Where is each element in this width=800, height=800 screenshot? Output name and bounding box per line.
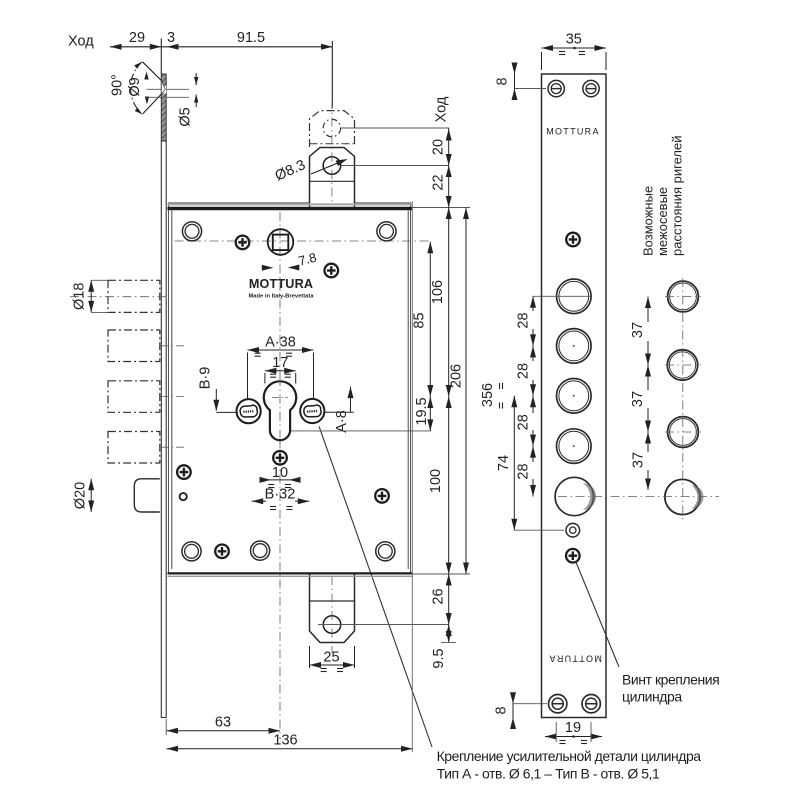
svg-text:MOTTURA: MOTTURA <box>546 127 600 137</box>
svg-text:206: 206 <box>448 364 464 388</box>
svg-text:расстояния ригелей: расстояния ригелей <box>670 136 685 256</box>
svg-text:8: 8 <box>494 706 510 714</box>
svg-text:Крепление усилительной детали: Крепление усилительной детали цилиндра <box>437 748 702 764</box>
svg-text:100: 100 <box>428 469 444 493</box>
svg-text:17: 17 <box>272 355 288 371</box>
svg-text:10: 10 <box>272 465 288 481</box>
svg-text:MOTTURA: MOTTURA <box>249 277 313 291</box>
svg-text:37: 37 <box>630 322 646 338</box>
svg-text:A·38: A·38 <box>265 335 296 351</box>
svg-text:22: 22 <box>431 174 447 190</box>
svg-text:Винт крепления: Винт крепления <box>622 672 719 688</box>
svg-text:19.5: 19.5 <box>414 397 430 425</box>
svg-text:28: 28 <box>516 463 532 479</box>
svg-text:90°: 90° <box>110 74 126 96</box>
svg-text:35: 35 <box>566 32 582 48</box>
svg-text:356: 356 <box>480 383 496 407</box>
svg-text:8: 8 <box>494 77 510 85</box>
svg-text:28: 28 <box>516 414 532 430</box>
svg-text:74: 74 <box>496 455 512 471</box>
svg-text:29: 29 <box>129 30 145 46</box>
svg-text:9.5: 9.5 <box>431 648 447 668</box>
svg-text:85: 85 <box>411 312 427 328</box>
svg-text:37: 37 <box>631 452 647 468</box>
svg-text:Made in Italy-Brevettata: Made in Italy-Brevettata <box>248 294 314 300</box>
svg-text:Ход: Ход <box>68 34 94 50</box>
svg-text:28: 28 <box>516 363 532 379</box>
svg-text:Ход: Ход <box>434 96 450 122</box>
svg-text:межосевые: межосевые <box>655 187 670 256</box>
svg-text:Ø20: Ø20 <box>72 482 88 509</box>
svg-text:Ø5: Ø5 <box>178 107 194 126</box>
svg-text:91.5: 91.5 <box>237 30 265 46</box>
svg-text:25: 25 <box>323 650 339 666</box>
svg-text:Ø9: Ø9 <box>127 77 143 96</box>
svg-text:Возможные: Возможные <box>641 186 656 256</box>
svg-text:3: 3 <box>167 30 175 46</box>
svg-text:B·9: B·9 <box>198 367 214 390</box>
svg-text:Ø18: Ø18 <box>72 283 88 310</box>
svg-text:MOTTURA: MOTTURA <box>548 654 602 664</box>
svg-text:Тип А - отв. Ø 6,1 – Тип В - о: Тип А - отв. Ø 6,1 – Тип В - отв. Ø 5,1 <box>437 766 660 782</box>
svg-text:106: 106 <box>430 280 446 304</box>
svg-text:19: 19 <box>565 720 581 736</box>
svg-text:20: 20 <box>431 139 447 155</box>
svg-text:цилиндра: цилиндра <box>622 689 682 705</box>
svg-text:37: 37 <box>630 391 646 407</box>
svg-text:136: 136 <box>273 733 297 749</box>
svg-text:B·32: B·32 <box>265 487 296 503</box>
svg-text:26: 26 <box>431 588 447 604</box>
svg-text:63: 63 <box>215 715 231 731</box>
svg-text:28: 28 <box>516 312 532 328</box>
svg-text:A·8: A·8 <box>334 410 350 433</box>
